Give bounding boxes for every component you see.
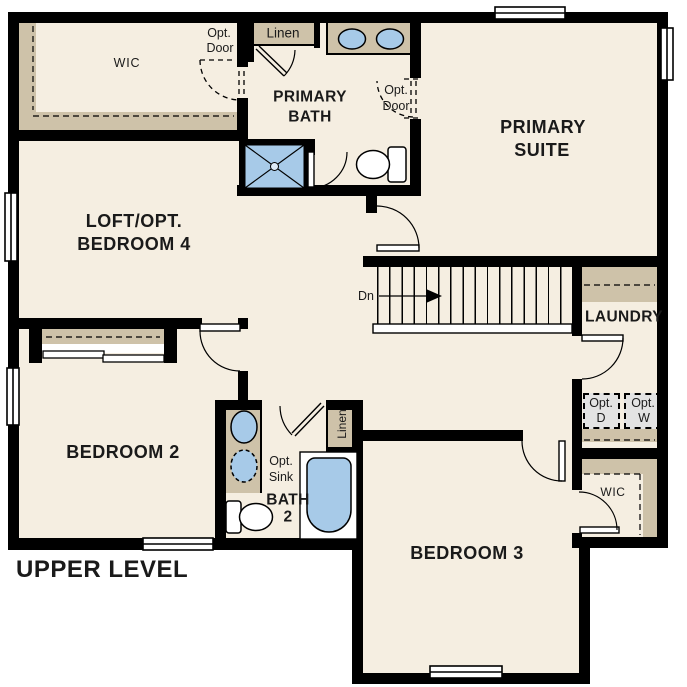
sink	[377, 29, 404, 49]
door-swing-arc	[280, 406, 292, 435]
door-leaf	[308, 152, 314, 187]
primary-bath-label-line2: BATH	[288, 109, 332, 125]
opt-dryer-label-line1: Opt.	[589, 397, 613, 410]
door-swing-arc	[522, 441, 562, 481]
opt-washer-label-line1: Opt.	[631, 397, 655, 410]
door-leaf	[200, 324, 240, 331]
stair-stringer	[373, 324, 572, 333]
door-leaf	[377, 245, 419, 251]
sink	[231, 411, 257, 443]
opt-sink-label-line1: Opt.	[269, 455, 293, 468]
primary-bath-label-line1: PRIMARY	[273, 89, 347, 105]
sink	[339, 29, 366, 49]
primary-suite-label-line2: SUITE	[514, 141, 570, 159]
bathtub-fixture	[307, 458, 351, 532]
primary-suite-label-line1: PRIMARY	[500, 118, 586, 136]
door-leaf-angled	[256, 46, 287, 76]
shower-drain	[271, 163, 279, 171]
laundry-label: LAUNDRY	[585, 309, 663, 325]
door-leaf	[580, 527, 619, 533]
level-title: UPPER LEVEL	[16, 556, 188, 584]
bypass-door	[103, 355, 164, 362]
floor-plan: WIC Opt. Door Linen PRIMARY BATH Opt. Do…	[0, 0, 687, 687]
door-swing-arc	[311, 152, 347, 188]
opt-washer-label-line2: W	[638, 412, 650, 425]
door-leaf-angled	[292, 403, 324, 436]
suite-opt-door-label-line1: Opt.	[384, 84, 408, 97]
door-leaf	[559, 441, 565, 481]
door-leaf	[582, 335, 623, 341]
loft-label-line1: LOFT/OPT.	[86, 212, 183, 230]
toilet-tank	[388, 147, 406, 182]
optional-door-arc	[200, 60, 240, 100]
opt-sink-label-line2: Sink	[269, 471, 293, 484]
door-swing-arc	[582, 338, 623, 379]
primary-linen-label: Linen	[266, 26, 299, 40]
wic-opt-door-label-line2: Door	[206, 42, 233, 55]
door-swing-arc	[377, 206, 419, 248]
bypass-door	[43, 351, 104, 358]
stairs-down-label: Dn	[358, 290, 374, 303]
optional-door-panel	[239, 62, 244, 97]
bath2-label-line2: 2	[283, 509, 292, 525]
bedroom3-wic-label: WIC	[600, 486, 625, 498]
bedroom3-label: BEDROOM 3	[410, 544, 524, 562]
primary-wic-label: WIC	[114, 57, 141, 70]
toilet-bowl	[357, 151, 390, 179]
bedroom2-label: BEDROOM 2	[66, 443, 180, 461]
wic-opt-door-label-line1: Opt.	[207, 27, 231, 40]
door-swing-arc	[200, 331, 240, 371]
bath2-label-line1: BATH	[266, 492, 310, 508]
suite-opt-door-label-line2: Door	[382, 100, 409, 113]
down-arrow-icon	[426, 289, 442, 303]
bath2-linen-label: Linen	[336, 409, 348, 438]
opt-dryer-label-line2: D	[596, 412, 605, 425]
optional-door-panel	[411, 81, 416, 116]
optional-sink	[231, 450, 257, 482]
loft-label-line2: BEDROOM 4	[77, 235, 191, 253]
